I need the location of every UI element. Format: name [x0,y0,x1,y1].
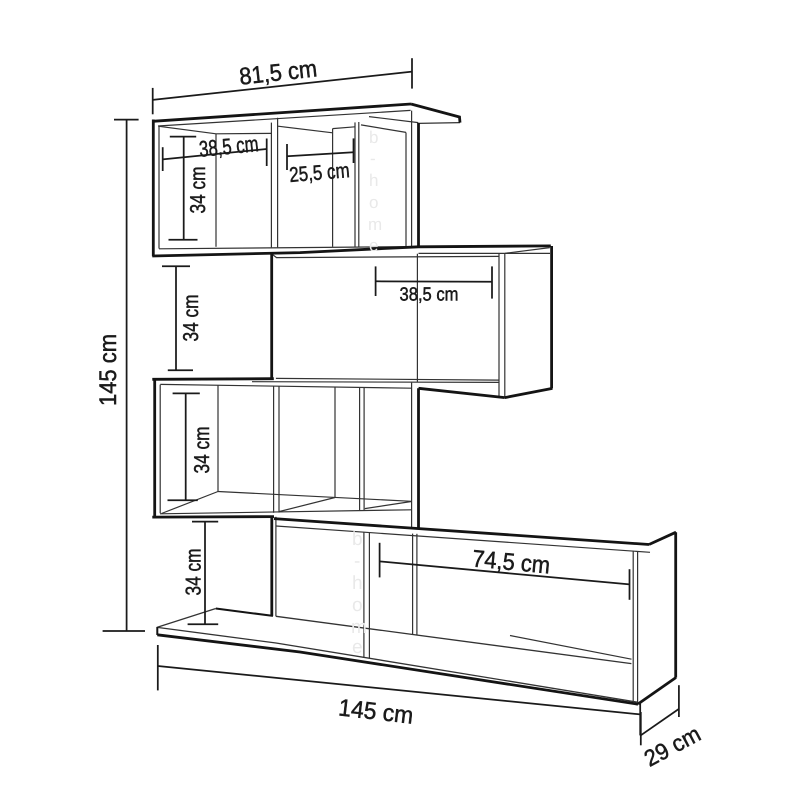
svg-text:34 cm: 34 cm [190,427,214,474]
svg-text:34 cm: 34 cm [182,549,206,596]
svg-text:34 cm: 34 cm [179,295,203,342]
svg-text:e: e [352,637,363,658]
svg-text:b: b [352,529,363,550]
svg-text:-: - [354,551,360,572]
svg-text:h: h [352,573,363,594]
svg-text:o: o [369,193,378,212]
svg-text:m: m [368,215,382,234]
svg-text:b: b [369,128,378,147]
svg-text:o: o [352,595,363,616]
svg-text:m: m [351,617,367,638]
svg-text:145 cm: 145 cm [95,334,122,406]
svg-text:38,5 cm: 38,5 cm [400,285,459,306]
svg-text:-: - [370,149,376,168]
svg-text:34 cm: 34 cm [186,167,210,214]
svg-text:h: h [369,171,378,190]
svg-text:25,5 cm: 25,5 cm [288,159,350,187]
svg-text:e: e [369,236,378,255]
